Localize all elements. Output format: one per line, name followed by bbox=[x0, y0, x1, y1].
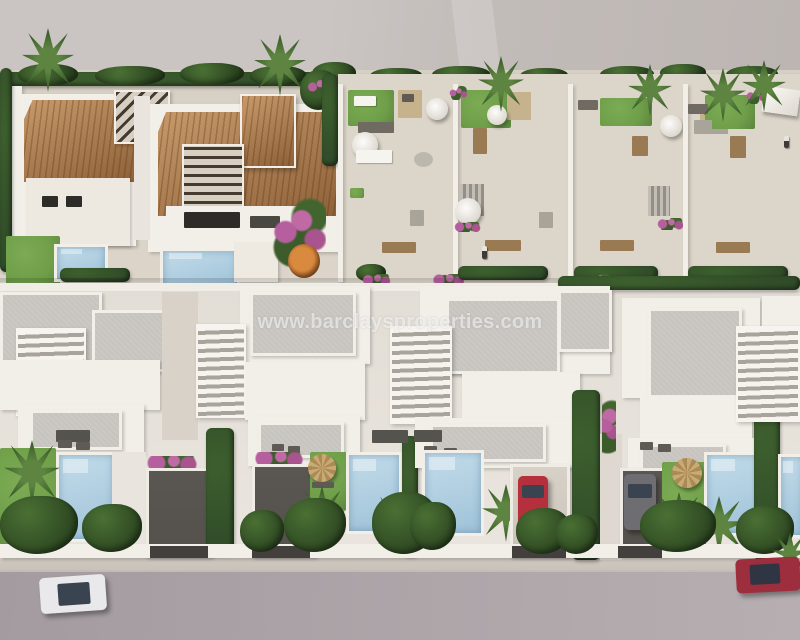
dining-table bbox=[632, 136, 648, 156]
roof-vent bbox=[76, 442, 90, 450]
car-roof-glass bbox=[749, 563, 780, 585]
climbing-flowers bbox=[602, 394, 616, 458]
terracotta-roof bbox=[240, 94, 296, 168]
glass-door bbox=[372, 430, 408, 443]
sun-loungers bbox=[354, 96, 376, 106]
walkway bbox=[134, 96, 150, 240]
white-car bbox=[39, 574, 107, 615]
dividing-wall bbox=[683, 84, 688, 282]
straw-parasol bbox=[308, 454, 336, 482]
sun-loungers bbox=[578, 100, 598, 110]
sun-loungers bbox=[688, 104, 708, 114]
orange-tree bbox=[288, 244, 320, 278]
red-car bbox=[735, 556, 800, 593]
villa-wall bbox=[462, 372, 580, 424]
white-pergola-slats bbox=[196, 324, 246, 418]
dining-table bbox=[600, 240, 634, 251]
aerial-development-render: www.barclaysproperties.com bbox=[0, 0, 800, 640]
window bbox=[42, 196, 58, 207]
roof-vent bbox=[272, 444, 284, 451]
round-sofa bbox=[414, 152, 433, 167]
straw-parasol bbox=[672, 458, 702, 488]
roof-vent bbox=[658, 444, 671, 452]
dining-table bbox=[716, 242, 750, 253]
driveway-gate bbox=[150, 546, 208, 558]
roof-vent bbox=[58, 440, 72, 448]
dividing-wall bbox=[453, 84, 458, 282]
side-alley bbox=[162, 292, 198, 440]
planter-flowers bbox=[452, 222, 482, 232]
flat-roof bbox=[446, 298, 560, 374]
dining-table bbox=[473, 128, 487, 154]
flower-bush bbox=[448, 86, 468, 100]
sun-loungers bbox=[312, 482, 334, 488]
white-pergola-slats bbox=[390, 326, 452, 424]
outdoor-sofa bbox=[410, 210, 424, 226]
outdoor-sofa bbox=[694, 120, 712, 134]
white-parasol bbox=[660, 115, 682, 137]
person bbox=[784, 136, 789, 148]
white-parasol bbox=[426, 98, 448, 120]
window bbox=[66, 196, 82, 207]
car-roof-glass bbox=[57, 582, 90, 606]
white-pergola-slats bbox=[736, 326, 800, 422]
outdoor-sofa bbox=[356, 150, 392, 163]
flat-roof bbox=[648, 308, 742, 398]
dividing-wall bbox=[338, 84, 343, 282]
roof-terrace-lawn bbox=[600, 98, 652, 126]
dining-table bbox=[382, 242, 416, 253]
dividing-wall bbox=[568, 84, 573, 282]
windshield bbox=[522, 485, 544, 498]
planter-flowers bbox=[655, 218, 685, 230]
person bbox=[482, 246, 487, 259]
dining-table bbox=[485, 240, 521, 251]
glass-door bbox=[414, 430, 442, 442]
villa-wall bbox=[245, 362, 365, 420]
planter bbox=[350, 188, 364, 198]
white-parasol bbox=[487, 105, 507, 125]
villa-wall bbox=[0, 360, 160, 410]
bbq bbox=[402, 94, 414, 102]
watermark: www.barclaysproperties.com bbox=[258, 311, 543, 334]
white-parasol bbox=[455, 198, 481, 224]
roof-vent bbox=[640, 442, 653, 450]
road bbox=[0, 570, 800, 640]
flat-roof bbox=[558, 290, 612, 352]
window-band bbox=[184, 212, 240, 228]
windshield bbox=[628, 484, 652, 498]
dining-table bbox=[730, 136, 746, 158]
outdoor-sofa bbox=[539, 212, 553, 228]
curtained-room bbox=[648, 186, 670, 216]
cypress-hedge bbox=[206, 428, 234, 554]
hedge bbox=[322, 74, 338, 166]
